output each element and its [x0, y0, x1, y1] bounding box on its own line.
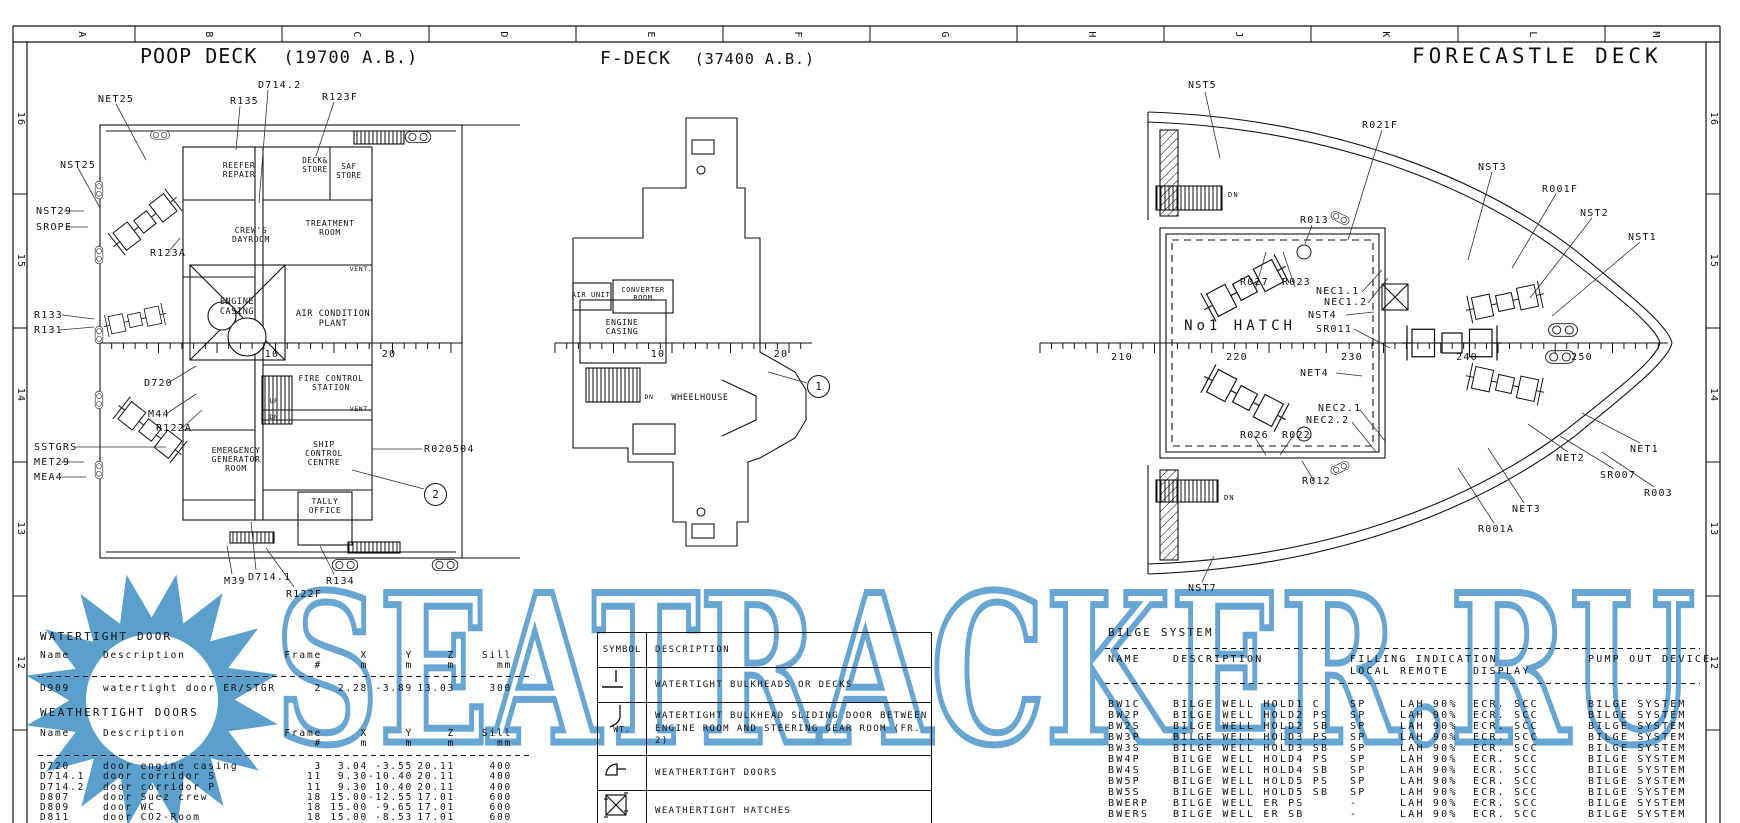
- plan-label: R023: [1282, 277, 1311, 289]
- plan-label: NST7: [1188, 583, 1217, 595]
- watertight-door-rows: D909watertight door ER/STGR22.28-3.8913.…: [40, 684, 512, 694]
- plan-label: VENT.: [350, 266, 373, 273]
- table-cell: BILGE SYSTEM: [1588, 732, 1698, 743]
- plan-label: 10: [651, 349, 665, 361]
- table-cell: SP: [1350, 754, 1400, 765]
- table-cell: ECR. SCC: [1473, 699, 1588, 710]
- table-cell: LAH 90%: [1400, 776, 1473, 787]
- bilge-system-title: BILGE SYSTEM: [1108, 626, 1214, 639]
- table-header-cell: Name: [40, 651, 103, 661]
- table-header-cell: m: [413, 661, 455, 671]
- plan-label: R022: [1282, 430, 1311, 442]
- plan-label: 14: [14, 388, 26, 402]
- plan-label: 15: [14, 254, 26, 268]
- weathertight-door-symbol: [598, 756, 647, 790]
- plan-label: B: [202, 31, 214, 38]
- plan-label: R027: [1240, 277, 1269, 289]
- ga-drawing-sheet: SEATRACKER.RU POOP DECK (19700 A.B.) F-D…: [0, 0, 1740, 823]
- table-cell: ECR. SCC: [1473, 809, 1588, 820]
- table-header-cell: #: [280, 739, 322, 749]
- table-header-cell: Description: [103, 651, 280, 661]
- watertight-door-title: WATERTIGHT DOOR: [40, 630, 172, 643]
- table-cell: 13.03: [413, 684, 455, 694]
- table-cell: door CO2-Room: [103, 813, 280, 823]
- table-header-cell: #: [280, 661, 322, 671]
- table-cell: 15.00: [322, 813, 368, 823]
- plan-label: SHIP CONTROL CENTRE: [305, 440, 343, 468]
- plan-label: D714.1: [248, 572, 291, 584]
- table-cell: LAH 90%: [1400, 809, 1473, 820]
- plan-label: DECK& STORE: [302, 157, 328, 174]
- table-cell: ECR. SCC: [1473, 710, 1588, 721]
- table-cell: BW3S: [1108, 743, 1173, 754]
- divider: [38, 755, 530, 756]
- table-cell: D811: [40, 813, 103, 823]
- symbol-legend-table: SYMBOL DESCRIPTION WATERTIGHT BULKHEADS …: [597, 632, 932, 823]
- table-header-cell: m: [322, 739, 368, 749]
- table-cell: D909: [40, 684, 103, 694]
- table-cell: -3.89: [368, 684, 413, 694]
- table-cell: LAH 90%: [1400, 699, 1473, 710]
- plan-label: FIRE CONTROL STATION: [299, 374, 364, 392]
- plan-label: R020504: [424, 444, 475, 456]
- table-cell: ECR. SCC: [1473, 743, 1588, 754]
- table-cell: BILGE WELL ER PS: [1173, 798, 1350, 809]
- plan-label: 220: [1226, 352, 1248, 364]
- table-cell: LAH 90%: [1400, 732, 1473, 743]
- plan-label: R123A: [150, 248, 186, 260]
- table-cell: ECR. SCC: [1473, 787, 1588, 798]
- plan-label: CREW'S DAYROOM: [232, 226, 270, 244]
- legend-desc: WEATHERTIGHT HATCHES: [647, 791, 931, 823]
- table-cell: BW2S: [1108, 721, 1173, 732]
- table-cell: BILGE WELL HOLD3 SB: [1173, 743, 1350, 754]
- table-cell: SP: [1350, 776, 1400, 787]
- table-cell: BILGE SYSTEM: [1588, 798, 1698, 809]
- plan-label: DN: [1228, 191, 1239, 199]
- table-cell: LAH 90%: [1400, 710, 1473, 721]
- table-cell: BW5P: [1108, 776, 1173, 787]
- table-cell: LAH 90%: [1400, 765, 1473, 776]
- table-cell: BW3P: [1108, 732, 1173, 743]
- plan-label: R134: [326, 576, 355, 588]
- weathertight-doors-title: WEATHERTIGHT DOORS: [40, 706, 199, 719]
- table-cell: BILGE SYSTEM: [1588, 787, 1698, 798]
- plan-label: DN: [644, 394, 653, 401]
- weathertight-doors-header: NameDescriptionFrameXYZSill#mmmmm: [40, 729, 512, 750]
- table-cell: BWERP: [1108, 798, 1173, 809]
- plan-label: 210: [1111, 352, 1133, 364]
- table-cell: -8.53: [368, 813, 413, 823]
- legend-desc: WATERTIGHT BULKHEADS OR DECKS: [647, 668, 931, 702]
- plan-label: 250: [1571, 352, 1593, 364]
- plan-label: NEC2.1: [1318, 403, 1361, 415]
- plan-label: 20: [774, 349, 788, 361]
- plan-label: L: [1526, 31, 1538, 38]
- plan-label: R003: [1644, 488, 1673, 500]
- f-deck-title: F-DECK (37400 A.B.): [600, 48, 815, 69]
- plan-label: ENGINE CASING: [220, 298, 254, 318]
- table-cell: 17.01: [413, 813, 455, 823]
- table-cell: BW2P: [1108, 710, 1173, 721]
- watertight-door-header: NameDescriptionFrameXYZSill#mmmmm: [40, 651, 512, 672]
- table-cell: BILGE WELL HOLD2 SB: [1173, 721, 1350, 732]
- table-cell: BILGE SYSTEM: [1588, 710, 1698, 721]
- table-cell: SP: [1350, 699, 1400, 710]
- bilge-system-rows: BW1CBILGE WELL HOLD1 CSPLAH 90%ECR. SCCB…: [1108, 699, 1698, 820]
- callout-1: 1: [807, 375, 830, 398]
- plan-label: NST4: [1308, 310, 1337, 322]
- plan-label: R012: [1302, 476, 1331, 488]
- divider: [38, 676, 530, 677]
- plan-label: R021F: [1362, 120, 1398, 132]
- table-cell: BILGE WELL HOLD5 SB: [1173, 787, 1350, 798]
- plan-label: NEC2.2: [1306, 415, 1349, 427]
- plan-label: D: [497, 31, 509, 38]
- plan-label: 230: [1341, 352, 1363, 364]
- table-cell: BILGE WELL HOLD2 PS: [1173, 710, 1350, 721]
- bilge-header-remote: REMOTE: [1400, 666, 1449, 677]
- table-cell: BILGE SYSTEM: [1588, 765, 1698, 776]
- table-cell: SP: [1350, 765, 1400, 776]
- plan-label: NST1: [1628, 232, 1657, 244]
- divider: [1105, 648, 1700, 649]
- plan-label: NET25: [98, 94, 134, 106]
- forecastle-deck-title: FORECASTLE DECK: [1412, 44, 1662, 68]
- plan-label: M39: [224, 576, 246, 588]
- table-cell: SP: [1350, 787, 1400, 798]
- poop-deck-title: POOP DECK (19700 A.B.): [140, 44, 418, 68]
- plan-label: DN: [269, 414, 278, 421]
- table-header-cell: m: [322, 661, 368, 671]
- table-cell: BILGE WELL HOLD3 PS: [1173, 732, 1350, 743]
- table-header-cell: [40, 739, 103, 749]
- table-cell: BILGE WELL HOLD5 PS: [1173, 776, 1350, 787]
- plan-label: MEA4: [34, 472, 63, 484]
- table-cell: -: [1350, 809, 1400, 820]
- plan-label: EMERGENCY GENERATOR ROOM: [212, 446, 261, 474]
- table-cell: BW4P: [1108, 754, 1173, 765]
- table-cell: BW4S: [1108, 765, 1173, 776]
- plan-label: K: [1379, 31, 1391, 38]
- table-cell: 2: [280, 684, 322, 694]
- plan-label: SROPE: [36, 222, 72, 234]
- table-cell: ECR. SCC: [1473, 765, 1588, 776]
- plan-label: 13: [14, 522, 26, 536]
- watertight-bulkhead-symbol: [598, 668, 647, 702]
- bilge-header-name: NAME: [1108, 654, 1141, 665]
- plan-label: CONVERTER ROOM: [621, 286, 664, 302]
- table-cell: BW5S: [1108, 787, 1173, 798]
- plan-label: NST2: [1580, 208, 1609, 220]
- table-cell: LAH 90%: [1400, 798, 1473, 809]
- plan-label: TALLY OFFICE: [309, 497, 342, 515]
- table-cell: BWERS: [1108, 809, 1173, 820]
- plan-label: R026: [1240, 430, 1269, 442]
- table-header-cell: m: [413, 739, 455, 749]
- plan-label: C: [350, 31, 362, 38]
- plan-label: R013: [1300, 215, 1329, 227]
- callout-2: 2: [424, 483, 447, 506]
- table-cell: LAH 90%: [1400, 754, 1473, 765]
- weathertight-doors-rows: D720door engine casing33.04-3.5520.11400…: [40, 762, 512, 823]
- plan-label: MET29: [34, 457, 70, 469]
- plan-label: NET4: [1300, 368, 1329, 380]
- table-cell: BILGE SYSTEM: [1588, 699, 1698, 710]
- plan-label: G: [938, 31, 950, 38]
- table-cell: SP: [1350, 721, 1400, 732]
- table-header-cell: mm: [455, 661, 512, 671]
- plan-label: 10: [265, 349, 279, 361]
- description-col-header: DESCRIPTION: [647, 633, 931, 667]
- table-cell: ECR. SCC: [1473, 732, 1588, 743]
- table-header-cell: m: [368, 739, 413, 749]
- table-cell: BILGE SYSTEM: [1588, 776, 1698, 787]
- table-cell: BW1C: [1108, 699, 1173, 710]
- divider: [1105, 683, 1700, 684]
- annotation-layer: POOP DECK (19700 A.B.) F-DECK (37400 A.B…: [0, 0, 1740, 823]
- plan-label: R122F: [286, 589, 322, 601]
- plan-label: M44: [148, 409, 170, 421]
- table-cell: BILGE WELL HOLD4 SB: [1173, 765, 1350, 776]
- plan-label: NET2: [1556, 453, 1585, 465]
- plan-label: WHEELHOUSE: [671, 394, 728, 404]
- plan-label: NST5: [1188, 80, 1217, 92]
- plan-label: VENT.: [350, 406, 373, 413]
- plan-label: R135: [230, 96, 259, 108]
- plan-label: NST25: [60, 160, 96, 172]
- plan-label: 13: [1707, 522, 1719, 536]
- plan-label: D714.2: [258, 80, 301, 92]
- table-header-cell: Name: [40, 729, 103, 739]
- bilge-header-local: LOCAL: [1350, 666, 1391, 677]
- table-cell: BILGE WELL HOLD4 PS: [1173, 754, 1350, 765]
- plan-label: ENGINE CASING: [606, 318, 639, 336]
- plan-label: F: [791, 31, 803, 38]
- table-cell: ECR. SCC: [1473, 721, 1588, 732]
- plan-label: SR011: [1316, 324, 1352, 336]
- weathertight-hatch-symbol: [598, 791, 647, 823]
- plan-label: H: [1085, 31, 1097, 38]
- symbol-col-header: SYMBOL: [598, 633, 647, 667]
- plan-label: SAF STORE: [336, 163, 362, 180]
- plan-label: No1 HATCH: [1184, 318, 1296, 334]
- plan-label: DN: [1224, 494, 1235, 502]
- plan-label: R133: [34, 310, 63, 322]
- plan-label: 240: [1456, 352, 1478, 364]
- table-header-cell: [40, 661, 103, 671]
- plan-label: D720: [144, 378, 173, 390]
- table-cell: -: [1350, 798, 1400, 809]
- plan-label: NEC1.2: [1324, 297, 1367, 309]
- table-header-cell: mm: [455, 739, 512, 749]
- plan-label: AIR CONDITION PLANT: [296, 310, 370, 330]
- plan-label: NEC1.1: [1316, 286, 1359, 298]
- bilge-header-description: DESCRIPTION: [1173, 654, 1263, 665]
- table-header-cell: m: [368, 661, 413, 671]
- plan-label: 15: [1707, 254, 1719, 268]
- plan-label: AIR UNIT: [572, 291, 611, 299]
- plan-label: REEFER REPAIR: [223, 161, 256, 179]
- plan-label: SSTGRS: [34, 442, 77, 454]
- plan-label: NET3: [1512, 504, 1541, 516]
- table-cell: 300: [455, 684, 512, 694]
- plan-label: NET1: [1630, 444, 1659, 456]
- plan-label: R123F: [322, 92, 358, 104]
- plan-label: SR007: [1600, 470, 1636, 482]
- table-cell: BILGE SYSTEM: [1588, 743, 1698, 754]
- table-cell: ECR. SCC: [1473, 776, 1588, 787]
- table-cell: watertight door ER/STGR: [103, 684, 280, 694]
- plan-label: NST29: [36, 206, 72, 218]
- table-cell: LAH 90%: [1400, 787, 1473, 798]
- bilge-header-display: DISPLAY: [1473, 666, 1531, 677]
- table-header-cell: [103, 661, 280, 671]
- table-cell: SP: [1350, 710, 1400, 721]
- legend-desc: WATERTIGHT BULKHEAD SLIDING DOOR BETWEEN…: [647, 703, 931, 755]
- plan-label: M: [1649, 31, 1661, 38]
- table-cell: SP: [1350, 732, 1400, 743]
- table-cell: 18: [280, 813, 322, 823]
- table-header-cell: Description: [103, 729, 280, 739]
- plan-label: E: [644, 31, 656, 38]
- plan-label: A: [75, 31, 87, 38]
- plan-label: TREATMENT ROOM: [306, 219, 355, 237]
- table-cell: BILGE SYSTEM: [1588, 754, 1698, 765]
- table-cell: BILGE WELL ER SB: [1173, 809, 1350, 820]
- wt-sliding-door-symbol: WT.: [598, 703, 647, 755]
- plan-label: 12: [14, 656, 26, 670]
- plan-label: R001F: [1542, 184, 1578, 196]
- table-cell: ECR. SCC: [1473, 798, 1588, 809]
- plan-label: 16: [14, 112, 26, 126]
- plan-label: NST3: [1478, 162, 1507, 174]
- plan-label: R122A: [156, 423, 192, 435]
- table-cell: ECR. SCC: [1473, 754, 1588, 765]
- table-cell: 600: [455, 813, 512, 823]
- plan-label: 14: [1707, 388, 1719, 402]
- plan-label: 16: [1707, 112, 1719, 126]
- table-cell: LAH 90%: [1400, 721, 1473, 732]
- plan-label: 20: [382, 349, 396, 361]
- table-cell: BILGE SYSTEM: [1588, 809, 1698, 820]
- plan-label: R001A: [1478, 524, 1514, 536]
- plan-label: R131: [34, 325, 63, 337]
- bilge-header-filling-indication: FILLING INDICATION: [1350, 654, 1498, 665]
- table-cell: SP: [1350, 743, 1400, 754]
- table-cell: BILGE SYSTEM: [1588, 721, 1698, 732]
- table-cell: LAH 90%: [1400, 743, 1473, 754]
- table-cell: BILGE WELL HOLD1 C: [1173, 699, 1350, 710]
- bilge-header-pump-out-device: PUMP OUT DEVICE: [1588, 654, 1711, 665]
- plan-label: UP: [269, 398, 278, 405]
- table-header-cell: [103, 739, 280, 749]
- plan-label: J: [1232, 31, 1244, 38]
- table-cell: 2.28: [322, 684, 368, 694]
- legend-desc: WEATHERTIGHT DOORS: [647, 756, 931, 790]
